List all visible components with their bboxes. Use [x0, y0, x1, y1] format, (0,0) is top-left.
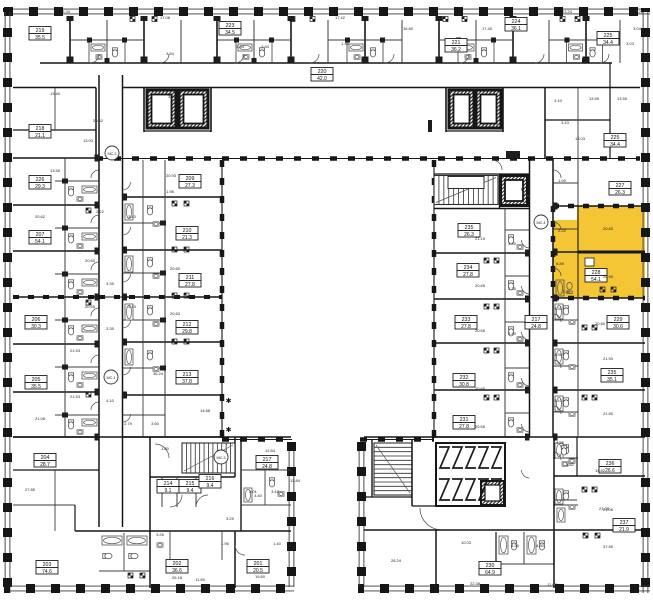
svg-text:19.80: 19.80: [255, 574, 266, 579]
svg-text:27.85: 27.85: [25, 487, 36, 492]
svg-text:205: 205: [32, 377, 41, 383]
svg-text:3.60: 3.60: [151, 421, 160, 426]
svg-text:36.24: 36.24: [153, 371, 164, 376]
svg-text:35.1: 35.1: [607, 377, 617, 383]
svg-text:20.65: 20.65: [475, 328, 486, 333]
svg-text:232: 232: [460, 375, 469, 381]
svg-text:9.1: 9.1: [165, 488, 172, 494]
svg-text:225: 225: [604, 33, 613, 39]
svg-text:218: 218: [36, 126, 45, 132]
svg-text:34.4: 34.4: [610, 142, 620, 148]
svg-text:13.84: 13.84: [290, 478, 301, 483]
svg-text:21.53: 21.53: [603, 356, 614, 361]
svg-text:3.43: 3.43: [128, 304, 137, 309]
svg-text:207: 207: [36, 232, 45, 238]
svg-text:9.4: 9.4: [187, 488, 194, 494]
svg-text:3.04: 3.04: [633, 26, 642, 31]
svg-text:20.60: 20.60: [170, 266, 181, 271]
svg-text:20.90: 20.90: [603, 274, 614, 279]
svg-text:212: 212: [183, 322, 192, 328]
svg-text:223: 223: [226, 23, 235, 29]
svg-text:36.1: 36.1: [511, 26, 521, 32]
svg-text:21.06: 21.06: [603, 507, 614, 512]
svg-text:17.42: 17.42: [335, 15, 346, 20]
svg-text:20.93: 20.93: [166, 173, 177, 178]
svg-text:3.01: 3.01: [249, 489, 258, 494]
svg-text:221: 221: [452, 40, 461, 46]
svg-text:210: 210: [183, 228, 192, 234]
svg-text:МС.4: МС.4: [536, 221, 545, 225]
svg-text:3.10: 3.10: [168, 94, 177, 99]
svg-text:203: 203: [43, 562, 52, 568]
svg-text:3.34: 3.34: [261, 44, 270, 49]
svg-text:3.43: 3.43: [554, 398, 563, 403]
svg-text:1.40: 1.40: [273, 541, 282, 546]
svg-text:226: 226: [36, 177, 45, 183]
svg-text:4.10: 4.10: [106, 398, 115, 403]
svg-text:20.5: 20.5: [253, 568, 263, 574]
svg-text:219: 219: [36, 28, 45, 34]
svg-text:217: 217: [263, 457, 272, 463]
svg-text:26.3: 26.3: [464, 232, 474, 238]
svg-text:20.65: 20.65: [475, 386, 486, 391]
svg-text:204: 204: [41, 455, 50, 461]
svg-text:27.8: 27.8: [461, 324, 471, 330]
svg-text:3.43: 3.43: [128, 214, 137, 219]
svg-text:235: 235: [465, 225, 474, 231]
svg-text:54.1: 54.1: [35, 239, 45, 245]
svg-text:36.6: 36.6: [172, 568, 182, 574]
svg-text:✱: ✱: [226, 426, 232, 434]
svg-text:20.62: 20.62: [35, 214, 46, 219]
svg-text:21.19: 21.19: [475, 236, 486, 241]
svg-text:21.3: 21.3: [182, 235, 192, 241]
svg-text:64.9: 64.9: [485, 570, 495, 576]
svg-text:3.36: 3.36: [554, 352, 563, 357]
svg-text:54.1: 54.1: [591, 277, 601, 283]
svg-text:21.50: 21.50: [603, 411, 614, 416]
svg-text:3.43: 3.43: [561, 120, 570, 125]
svg-text:34.4: 34.4: [603, 40, 613, 46]
svg-text:3.43: 3.43: [508, 331, 517, 336]
svg-text:27.8: 27.8: [463, 272, 473, 278]
svg-text:230: 230: [486, 563, 495, 569]
svg-text:26.18: 26.18: [172, 575, 183, 580]
svg-text:37.8: 37.8: [182, 379, 192, 385]
svg-text:28.24: 28.24: [391, 558, 402, 563]
svg-text:237: 237: [620, 520, 629, 526]
svg-text:16.80: 16.80: [403, 26, 414, 31]
svg-text:11.07: 11.07: [547, 582, 557, 587]
svg-text:13.55: 13.55: [589, 96, 600, 101]
svg-text:26.3: 26.3: [615, 190, 625, 196]
svg-text:26.6: 26.6: [605, 468, 615, 474]
svg-text:3.43: 3.43: [271, 489, 280, 494]
svg-text:4.32: 4.32: [556, 440, 565, 445]
svg-text:20.83: 20.83: [603, 226, 614, 231]
svg-text:201: 201: [254, 561, 263, 567]
svg-text:23.24: 23.24: [562, 9, 573, 14]
svg-text:14.88: 14.88: [200, 408, 211, 413]
svg-text:224: 224: [512, 19, 521, 25]
svg-text:202: 202: [173, 561, 182, 567]
svg-text:23.26: 23.26: [633, 9, 644, 14]
svg-text:227: 227: [616, 183, 625, 189]
svg-text:13.40: 13.40: [50, 91, 61, 96]
svg-text:231: 231: [460, 417, 469, 423]
svg-text:✱: ✱: [226, 397, 232, 405]
svg-text:4.26: 4.26: [511, 543, 520, 548]
svg-text:34.5: 34.5: [225, 30, 235, 36]
svg-text:3.35: 3.35: [106, 281, 115, 286]
svg-text:211: 211: [186, 275, 194, 281]
svg-text:35.5: 35.5: [35, 35, 45, 41]
svg-text:13.55: 13.55: [617, 96, 628, 101]
svg-text:215: 215: [186, 481, 195, 487]
svg-text:20.65: 20.65: [475, 424, 486, 429]
svg-text:27.8: 27.8: [459, 424, 469, 430]
svg-text:МС.3: МС.3: [216, 456, 225, 460]
svg-text:30.8: 30.8: [459, 382, 469, 388]
svg-text:29.3: 29.3: [35, 184, 45, 190]
svg-text:35.5: 35.5: [31, 384, 41, 390]
svg-text:1.82: 1.82: [566, 462, 575, 467]
svg-text:19.82: 19.82: [595, 468, 606, 473]
svg-text:3.29: 3.29: [226, 516, 235, 521]
svg-text:24.8: 24.8: [262, 464, 272, 470]
svg-text:20.65: 20.65: [85, 304, 96, 309]
svg-text:235: 235: [608, 370, 617, 376]
svg-text:11.89: 11.89: [195, 577, 205, 582]
svg-text:21.9: 21.9: [619, 527, 629, 533]
svg-text:3.26: 3.26: [156, 532, 165, 537]
svg-text:4.30: 4.30: [536, 543, 545, 548]
svg-text:22.38: 22.38: [470, 581, 481, 586]
svg-text:1.99: 1.99: [558, 178, 567, 183]
svg-text:3.54: 3.54: [166, 51, 175, 56]
svg-text:27.3: 27.3: [185, 183, 195, 189]
svg-text:13.03: 13.03: [575, 136, 586, 141]
svg-text:6.89: 6.89: [556, 261, 565, 266]
svg-text:2.22: 2.22: [96, 209, 105, 214]
svg-text:1.98: 1.98: [166, 189, 175, 194]
svg-text:213: 213: [183, 372, 192, 378]
svg-text:13.55: 13.55: [50, 168, 61, 173]
svg-text:36.2: 36.2: [451, 47, 461, 53]
svg-text:2.22: 2.22: [558, 228, 567, 233]
svg-text:20.62: 20.62: [93, 118, 104, 123]
svg-text:23.34: 23.34: [60, 9, 71, 14]
svg-text:МС.1: МС.1: [106, 376, 115, 380]
svg-text:17.45: 17.45: [482, 26, 493, 31]
svg-text:30.6: 30.6: [613, 324, 623, 330]
svg-text:9.4: 9.4: [207, 483, 214, 489]
svg-text:29.8: 29.8: [182, 329, 192, 335]
svg-text:233: 233: [462, 317, 471, 323]
svg-text:3.35: 3.35: [554, 306, 563, 311]
svg-text:13.03: 13.03: [83, 138, 94, 143]
svg-text:24.8: 24.8: [531, 324, 541, 330]
svg-text:220: 220: [318, 69, 327, 75]
svg-text:20.60: 20.60: [85, 258, 96, 263]
svg-text:21.53: 21.53: [70, 348, 81, 353]
svg-text:3.03: 3.03: [626, 41, 635, 46]
svg-text:74.6: 74.6: [42, 569, 52, 575]
svg-text:225: 225: [611, 135, 620, 141]
svg-text:42.0: 42.0: [317, 76, 327, 82]
svg-text:236: 236: [606, 461, 615, 467]
svg-text:3.35: 3.35: [508, 241, 517, 246]
svg-text:3.35: 3.35: [508, 286, 517, 291]
svg-text:2.79: 2.79: [124, 421, 133, 426]
svg-text:27.8: 27.8: [185, 282, 195, 288]
svg-text:234: 234: [464, 265, 473, 271]
svg-text:3.10: 3.10: [554, 98, 563, 103]
svg-text:12.84: 12.84: [265, 448, 276, 453]
svg-text:1.45: 1.45: [341, 41, 350, 46]
svg-text:21.53: 21.53: [70, 394, 81, 399]
svg-text:37.85: 37.85: [603, 544, 614, 549]
svg-text:228: 228: [592, 270, 601, 276]
svg-text:216: 216: [206, 476, 215, 482]
svg-text:3.35: 3.35: [106, 326, 115, 331]
svg-text:17.08: 17.08: [160, 15, 171, 20]
svg-text:229: 229: [614, 317, 623, 323]
svg-text:206: 206: [32, 317, 41, 323]
svg-text:20.65: 20.65: [475, 283, 486, 288]
svg-text:МС.2: МС.2: [107, 152, 116, 156]
svg-text:21.1: 21.1: [35, 133, 45, 139]
svg-text:3.35: 3.35: [562, 289, 571, 294]
svg-text:20.60: 20.60: [595, 321, 606, 326]
svg-text:21.08: 21.08: [35, 416, 46, 421]
svg-text:3.34: 3.34: [236, 44, 245, 49]
svg-text:214: 214: [164, 481, 173, 487]
svg-text:20.63: 20.63: [170, 311, 181, 316]
svg-text:209: 209: [186, 176, 195, 182]
svg-text:28.7: 28.7: [40, 462, 50, 468]
svg-text:1.80: 1.80: [161, 446, 170, 451]
svg-text:1.96: 1.96: [221, 541, 230, 546]
svg-text:10.03: 10.03: [461, 540, 472, 545]
svg-text:217: 217: [532, 317, 541, 323]
svg-text:30.3: 30.3: [31, 324, 41, 330]
